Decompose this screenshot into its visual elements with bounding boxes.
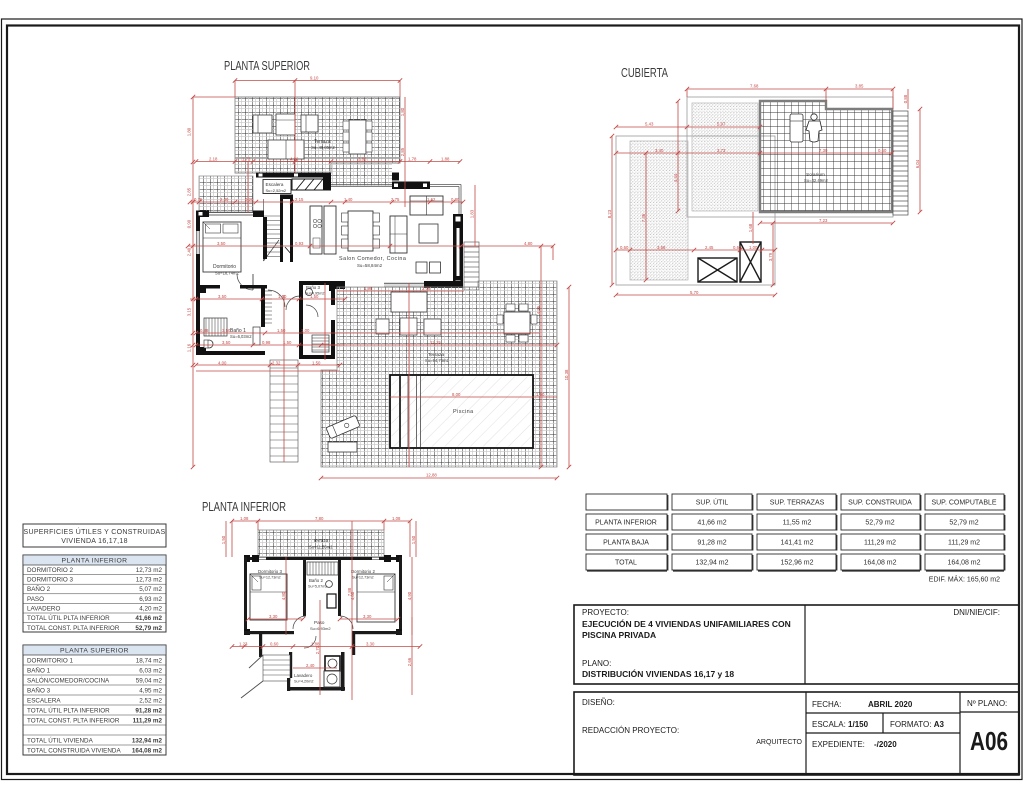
svg-text:1,50: 1,50 [312,360,321,365]
svg-text:6,93 m2: 6,93 m2 [139,596,162,603]
svg-text:BAÑO 3: BAÑO 3 [27,685,51,694]
svg-text:1,08: 1,08 [240,516,249,521]
svg-text:3,15: 3,15 [187,307,192,316]
svg-text:1,73: 1,73 [242,156,251,161]
svg-text:2,45: 2,45 [705,245,714,250]
svg-text:0,20: 0,20 [245,197,254,202]
svg-text:ESCALA: 1/150: ESCALA: 1/150 [812,720,869,729]
svg-text:7,30: 7,30 [819,148,828,153]
svg-text:3,50: 3,50 [218,294,227,299]
svg-text:TOTAL CONST. PLTA INFERIOR: TOTAL CONST. PLTA INFERIOR [27,717,120,724]
svg-text:4,95 m2: 4,95 m2 [139,687,162,694]
svg-text:ARQUITECTO: ARQUITECTO [756,739,802,746]
svg-text:1,80: 1,80 [187,127,192,136]
svg-text:3,85: 3,85 [358,156,367,161]
svg-text:SUP. TERRAZAS: SUP. TERRAZAS [770,500,825,507]
svg-text:PLANTA SUPERIOR: PLANTA SUPERIOR [60,648,129,655]
svg-text:Piscina: Piscina [453,409,474,415]
svg-text:3,79: 3,79 [768,252,773,261]
svg-text:1,00: 1,00 [301,328,310,333]
svg-text:1,50: 1,50 [310,294,319,299]
svg-text:6,03 m2: 6,03 m2 [139,667,162,674]
svg-text:5,70: 5,70 [690,290,699,295]
svg-text:0,98: 0,98 [262,340,271,345]
svg-text:1,68: 1,68 [748,223,753,232]
svg-text:DNI/NIE/CIF:: DNI/NIE/CIF: [953,608,1000,617]
svg-text:Su=58,84m2: Su=58,84m2 [357,263,383,268]
svg-text:3,30: 3,30 [366,641,375,646]
svg-text:EDIF. MÁX: 165,60 m2: EDIF. MÁX: 165,60 m2 [929,575,1000,584]
svg-text:3,40: 3,40 [655,148,664,153]
svg-text:PLANTA INFERIOR: PLANTA INFERIOR [62,558,128,565]
svg-text:5,43: 5,43 [645,122,654,127]
svg-text:SUPERFICIES ÚTILES Y CONSTRUID: SUPERFICIES ÚTILES Y CONSTRUIDAS [24,527,166,536]
svg-text:TOTAL ÚTIL VIVIENDA: TOTAL ÚTIL VIVIENDA [27,735,94,744]
svg-text:18,74 m2: 18,74 m2 [136,657,163,664]
svg-text:PASO: PASO [27,596,44,603]
svg-text:4,20 m2: 4,20 m2 [139,605,162,612]
svg-text:52,79 m2: 52,79 m2 [949,520,978,527]
svg-text:TOTAL ÚTIL PLTA INFERIOR: TOTAL ÚTIL PLTA INFERIOR [27,613,110,622]
svg-text:2,40: 2,40 [220,197,229,202]
svg-text:1,90: 1,90 [536,392,545,397]
svg-text:0,60: 0,60 [878,148,887,153]
svg-text:PISCINA PRIVADA: PISCINA PRIVADA [582,630,656,640]
svg-text:141,41 m2: 141,41 m2 [780,540,813,547]
svg-text:1,83: 1,83 [470,209,475,218]
svg-text:Dormitorio: Dormitorio [213,264,236,270]
svg-text:2,70: 2,70 [315,645,320,654]
svg-text:3,50: 3,50 [222,340,231,345]
svg-text:SUP. ÚTIL: SUP. ÚTIL [696,498,729,507]
svg-text:DORMITORIO 2: DORMITORIO 2 [27,567,74,574]
svg-text:FORMATO: A3: FORMATO: A3 [890,720,944,729]
svg-text:BAÑO 2: BAÑO 2 [27,584,51,593]
svg-text:164,08 m2: 164,08 m2 [863,560,896,567]
svg-text:1,00: 1,00 [749,245,758,250]
svg-text:0,80: 0,80 [451,197,460,202]
svg-text:SALÓN/COMEDOR/COCINA: SALÓN/COMEDOR/COCINA [27,675,110,684]
svg-text:4,80: 4,80 [281,591,286,600]
svg-text:7,88: 7,88 [347,587,352,596]
svg-text:4,90: 4,90 [407,591,412,600]
svg-text:111,29 m2: 111,29 m2 [948,540,980,547]
svg-text:41,66 m2: 41,66 m2 [135,615,162,622]
svg-text:Su=11,55m2: Su=11,55m2 [309,545,333,550]
svg-text:0,93: 0,93 [295,241,304,246]
svg-text:2,40: 2,40 [187,247,192,256]
svg-text:LAVADERO: LAVADERO [27,605,60,612]
svg-text:Escalera: Escalera [266,182,284,187]
svg-text:5,07 m2: 5,07 m2 [139,586,162,593]
svg-text:4,80: 4,80 [524,241,533,246]
svg-text:DORMITORIO 3: DORMITORIO 3 [27,577,74,584]
svg-text:7,23: 7,23 [819,218,828,223]
svg-text:A06: A06 [970,726,1008,756]
svg-text:Su=5,07m2: Su=5,07m2 [308,585,328,589]
svg-text:4,00: 4,00 [218,360,227,365]
svg-text:91,28 m2: 91,28 m2 [697,540,726,547]
svg-text:DORMITORIO 1: DORMITORIO 1 [27,657,74,664]
svg-text:1,78: 1,78 [408,156,417,161]
svg-text:7,68: 7,68 [750,84,759,89]
svg-text:0,60: 0,60 [270,641,279,646]
svg-text:2,18: 2,18 [209,156,218,161]
svg-text:52,79 m2: 52,79 m2 [865,520,894,527]
svg-text:Dormitorio 2: Dormitorio 2 [351,569,375,574]
svg-text:BAÑO 1: BAÑO 1 [27,665,51,674]
svg-text:PROYECTO:: PROYECTO: [582,608,629,617]
svg-text:TOTAL CONSTRUIDA VIVIENDA: TOTAL CONSTRUIDA VIVIENDA [27,748,121,755]
svg-text:Su=94,76m2: Su=94,76m2 [425,358,450,363]
svg-text:7,80: 7,80 [315,516,324,521]
svg-text:Salon Comedor, Cocina: Salon Comedor, Cocina [339,256,406,262]
svg-text:FECHA:: FECHA: [812,700,841,709]
svg-text:Baño 3: Baño 3 [306,285,320,290]
svg-text:0,60: 0,60 [620,245,629,250]
svg-text:Su=18,74m2: Su=18,74m2 [215,271,240,276]
svg-text:2,85: 2,85 [187,187,192,196]
svg-text:1,88: 1,88 [311,641,320,646]
svg-text:1,98: 1,98 [364,286,373,291]
svg-text:Nº PLANO:: Nº PLANO: [967,699,1007,708]
svg-text:1,80: 1,80 [400,107,405,116]
svg-text:12,73 m2: 12,73 m2 [136,577,163,584]
svg-text:11,55 m2: 11,55 m2 [783,520,812,527]
svg-text:111,29 m2: 111,29 m2 [133,717,163,724]
svg-text:VIVIENDA 16,17,18: VIVIENDA 16,17,18 [61,538,128,545]
svg-text:Su=6,03m2: Su=6,03m2 [230,334,252,339]
svg-text:1,50: 1,50 [283,340,292,345]
svg-text:1,50: 1,50 [277,328,286,333]
svg-text:TOTAL CONST. PLTA INFERIOR: TOTAL CONST. PLTA INFERIOR [27,625,120,632]
svg-text:TOTAL ÚTIL PLTA INFERIOR: TOTAL ÚTIL PLTA INFERIOR [27,705,110,714]
svg-text:Dormitorio 3: Dormitorio 3 [258,569,282,574]
svg-text:2,52 m2: 2,52 m2 [139,697,162,704]
svg-text:132,94 m2: 132,94 m2 [695,560,728,567]
svg-text:EJECUCIÓN DE 4 VIVIENDAS UNIFA: EJECUCIÓN DE 4 VIVIENDAS UNIFAMILIARES C… [582,618,791,629]
svg-text:Su=42,49m2: Su=42,49m2 [804,178,829,183]
svg-text:1,50: 1,50 [278,294,287,299]
svg-text:0,75: 0,75 [194,197,203,202]
svg-text:3,73: 3,73 [717,148,726,153]
svg-text:91,28 m2: 91,28 m2 [135,707,162,714]
svg-text:Su=2,52m2: Su=2,52m2 [266,188,287,193]
svg-text:4,44: 4,44 [673,173,678,182]
svg-text:2,85: 2,85 [400,147,405,156]
svg-text:DISEÑO:: DISEÑO: [582,698,615,707]
svg-text:132,94 m2: 132,94 m2 [132,737,163,744]
svg-text:0,90: 0,90 [187,219,192,228]
svg-text:-/2020: -/2020 [874,740,897,749]
svg-text:EXPEDIENTE:: EXPEDIENTE: [812,740,865,749]
svg-text:8,00: 8,00 [452,392,461,397]
svg-text:3,58: 3,58 [657,245,666,250]
svg-text:3,50: 3,50 [217,241,226,246]
svg-text:9,10: 9,10 [310,75,319,80]
svg-text:4,92: 4,92 [290,156,299,161]
svg-text:2,15: 2,15 [295,197,304,202]
svg-text:0,88: 0,88 [903,94,908,103]
svg-text:12,88: 12,88 [426,473,437,478]
svg-text:Baño 2: Baño 2 [309,578,323,583]
svg-text:1,23: 1,23 [239,641,248,646]
svg-text:PLANTA SUPERIOR: PLANTA SUPERIOR [224,59,310,73]
svg-text:Paso: Paso [314,620,325,625]
svg-text:12,15: 12,15 [430,340,441,345]
svg-text:152,96 m2: 152,96 m2 [780,560,813,567]
svg-text:ABRIL 2020: ABRIL 2020 [868,700,913,709]
svg-text:1,88: 1,88 [441,156,450,161]
svg-text:CUBIERTA: CUBIERTA [621,66,668,80]
svg-text:PLANTA BAJA: PLANTA BAJA [603,540,649,547]
svg-text:1,50: 1,50 [411,535,416,544]
svg-text:Su=4,20m2: Su=4,20m2 [294,680,314,684]
svg-text:3,50: 3,50 [222,328,231,333]
svg-text:TOTAL: TOTAL [615,560,637,567]
svg-text:2,08: 2,08 [422,286,431,291]
svg-text:5,97: 5,97 [717,122,726,127]
svg-text:7,35: 7,35 [641,213,646,222]
svg-text:52,79 m2: 52,79 m2 [135,625,162,632]
svg-text:Su=6,93m2: Su=6,93m2 [310,626,331,631]
svg-text:SUP. CONSTRUIDA: SUP. CONSTRUIDA [848,500,912,507]
svg-text:Su=12,73m2: Su=12,73m2 [352,576,374,580]
svg-text:3,30: 3,30 [269,614,278,619]
svg-text:6,04: 6,04 [915,159,920,168]
svg-text:41,66 m2: 41,66 m2 [697,520,726,527]
svg-text:59,04 m2: 59,04 m2 [136,677,163,684]
svg-text:ESCALERA: ESCALERA [27,697,61,704]
svg-text:Lavadero: Lavadero [294,673,313,678]
svg-text:Su=40,85m2: Su=40,85m2 [311,145,336,150]
svg-text:12,73 m2: 12,73 m2 [136,567,163,574]
svg-text:0,88: 0,88 [200,328,209,333]
svg-text:Terraza: Terraza [313,538,329,543]
svg-text:2,40: 2,40 [306,663,315,668]
svg-text:PLANO:: PLANO: [582,659,611,668]
svg-text:8,23: 8,23 [607,209,612,218]
svg-text:3,30: 3,30 [363,614,372,619]
svg-text:3,85: 3,85 [855,84,864,89]
svg-text:111,29 m2: 111,29 m2 [864,540,896,547]
svg-text:164,08 m2: 164,08 m2 [947,560,980,567]
svg-text:SUP. COMPUTABLE: SUP. COMPUTABLE [931,500,996,507]
svg-text:DISTRIBUCIÓN VIVIENDAS 16,17 y: DISTRIBUCIÓN VIVIENDAS 16,17 y 18 [582,668,734,679]
svg-text:1,08: 1,08 [392,516,401,521]
svg-text:1,50: 1,50 [221,535,226,544]
svg-text:2,66: 2,66 [407,657,412,666]
svg-text:PLANTA INFERIOR: PLANTA INFERIOR [202,500,286,514]
svg-text:4,95: 4,95 [536,305,541,314]
svg-text:Su=12,73m2: Su=12,73m2 [259,576,281,580]
svg-text:PLANTA INFERIOR: PLANTA INFERIOR [595,520,657,527]
svg-text:10,38: 10,38 [564,369,569,380]
svg-text:2,32: 2,32 [272,360,281,365]
svg-text:164,08 m2: 164,08 m2 [132,748,163,755]
svg-text:REDACCIÓN PROYECTO:: REDACCIÓN PROYECTO: [582,726,679,735]
svg-text:1,16: 1,16 [187,343,192,352]
